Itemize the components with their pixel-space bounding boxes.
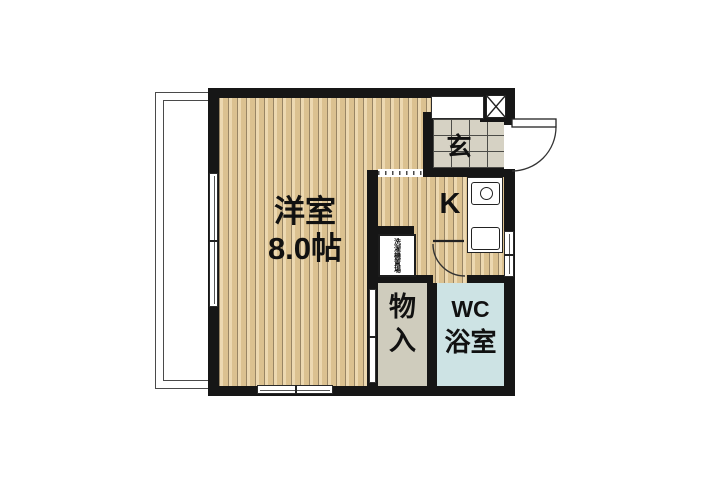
window-kitchen-icon [504,231,514,277]
floor-plan: 洗濯機置場 洋室 8.0帖 K 玄 物 入 WC 浴室 [0,0,720,480]
entrance-door-arc-icon [512,127,556,171]
sink-icon [471,182,500,205]
living-room-name: 洋室 [223,193,387,230]
wall-under-entrance [423,168,504,177]
wall-bottom [208,386,515,396]
pipe-space-cross-icon [486,95,506,118]
room-kitchen-opening [378,169,423,177]
stove-icon [471,227,500,250]
kitchen-counter [467,177,503,253]
entrance-door-leaf-icon [512,119,556,127]
wall-closet-bath-divider [427,283,437,396]
closet-sliding-door-icon [369,289,376,383]
kitchen-label: K [428,189,472,219]
window-bottom-icon [257,385,333,394]
bathroom-label: WC 浴室 [437,293,504,359]
entrance-door-opening [504,125,515,169]
living-room-label: 洋室 8.0帖 [223,193,387,267]
living-room-area: 8.0帖 [223,230,387,267]
shoe-cabinet [431,96,484,119]
entrance-label: 玄 [433,127,485,163]
window-left-icon [209,173,218,307]
sink-bowl-icon [480,187,493,200]
balcony-inner-line [163,100,214,381]
utility-box-label: 洗濯機置場 [394,238,401,273]
closet-label: 物 入 [378,290,427,358]
